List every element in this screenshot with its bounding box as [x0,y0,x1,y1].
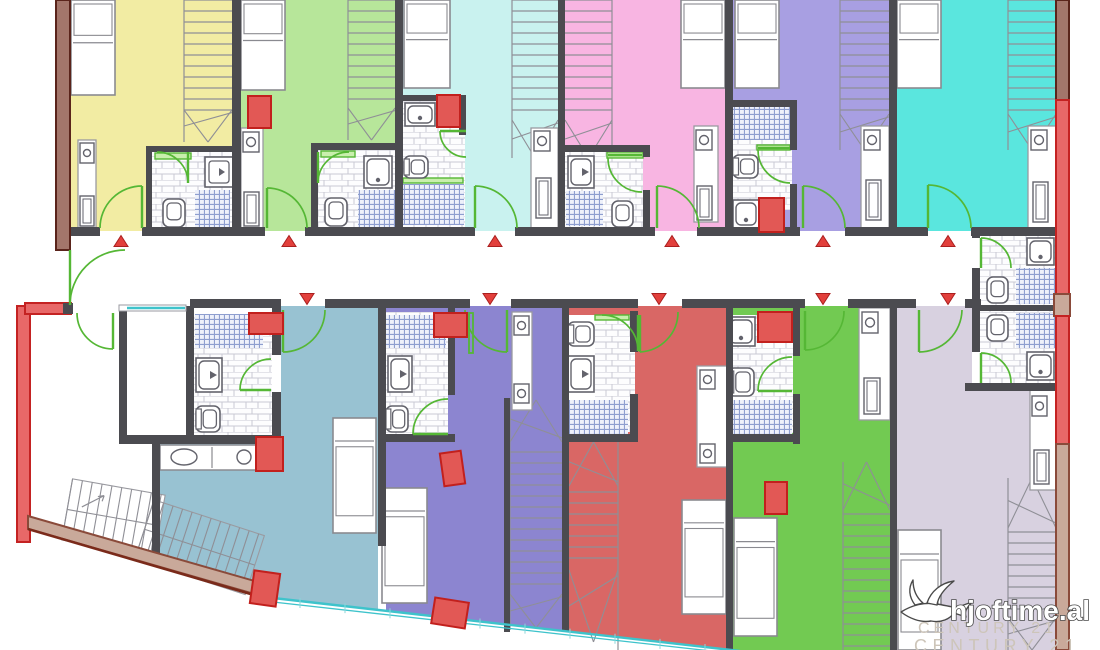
svg-text:hjoftime.al: hjoftime.al [950,595,1090,626]
svg-text:CENTURY 21: CENTURY 21 [914,636,1080,650]
